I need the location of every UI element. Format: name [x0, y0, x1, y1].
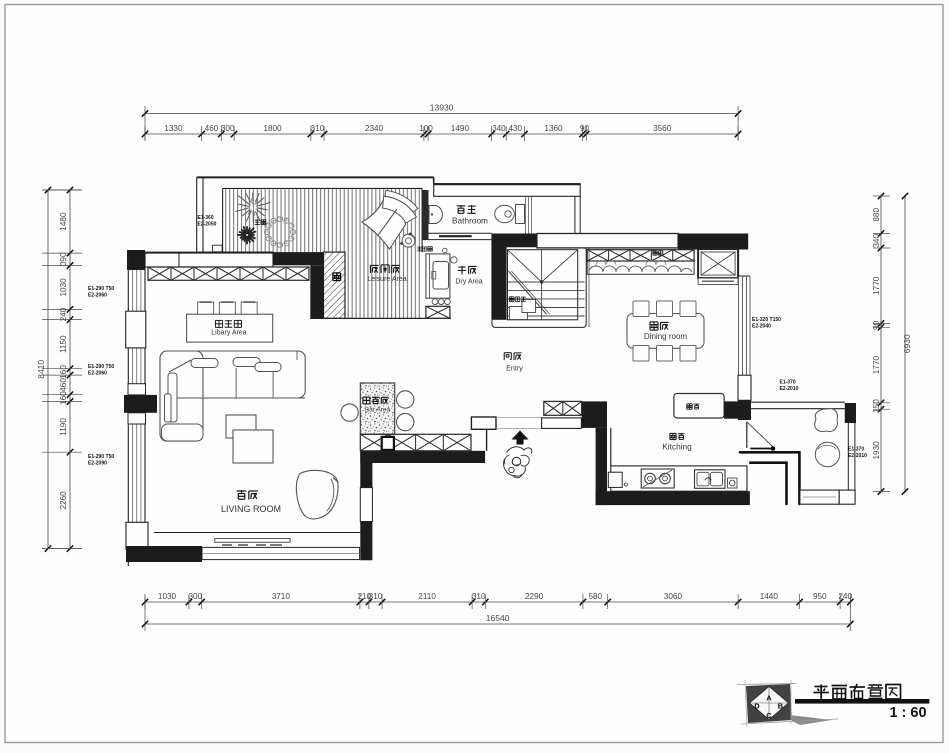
svg-text:LIVING ROOM: LIVING ROOM: [221, 504, 281, 514]
svg-text:Entry: Entry: [506, 364, 523, 373]
svg-text:E2-2040: E2-2040: [752, 324, 771, 330]
svg-text:1330: 1330: [164, 124, 183, 133]
svg-text:2340: 2340: [365, 124, 384, 133]
svg-text:3560: 3560: [653, 124, 672, 133]
svg-text:1770: 1770: [872, 356, 881, 375]
svg-text:340: 340: [492, 124, 506, 133]
svg-text:310: 310: [369, 592, 383, 601]
svg-text:E2-2060: E2-2060: [88, 371, 107, 377]
svg-text:Dining room: Dining room: [644, 332, 687, 341]
svg-text:880: 880: [872, 208, 881, 222]
svg-text:E1-370: E1-370: [780, 380, 796, 386]
svg-text:580: 580: [588, 592, 602, 601]
svg-text:1030: 1030: [59, 278, 68, 297]
svg-text:2290: 2290: [525, 592, 544, 601]
svg-text:E1-360: E1-360: [198, 215, 214, 221]
svg-text:13930: 13930: [430, 103, 454, 113]
svg-text:2110: 2110: [418, 592, 436, 601]
svg-text:460: 460: [59, 378, 68, 392]
svg-text:16540: 16540: [486, 613, 510, 623]
svg-text:300: 300: [188, 592, 202, 601]
svg-text:1930: 1930: [872, 441, 881, 460]
svg-text:3710: 3710: [272, 592, 291, 601]
svg-text:90: 90: [580, 124, 590, 133]
svg-text:240: 240: [59, 307, 68, 321]
svg-text:160: 160: [59, 365, 68, 379]
svg-text:E2-2010: E2-2010: [780, 386, 799, 392]
svg-text:1150: 1150: [59, 335, 68, 353]
svg-text:Dry Area: Dry Area: [455, 279, 482, 286]
svg-text:8410: 8410: [36, 360, 46, 379]
svg-text:E1-370: E1-370: [848, 447, 864, 453]
svg-text:300: 300: [221, 124, 235, 133]
svg-text:A: A: [766, 694, 772, 703]
svg-text:Leisure Area: Leisure Area: [367, 276, 406, 283]
svg-text:E1-290 T50: E1-290 T50: [88, 286, 114, 292]
svg-text:E1-320 T150: E1-320 T150: [752, 317, 781, 323]
svg-text:E1-290 T50: E1-290 T50: [88, 364, 114, 370]
svg-text:1 : 60: 1 : 60: [889, 705, 926, 721]
svg-text:310: 310: [472, 592, 486, 601]
svg-text:950: 950: [813, 592, 827, 601]
svg-text:D: D: [754, 702, 760, 711]
svg-text:E2-2090: E2-2090: [88, 461, 107, 467]
svg-text:E1-290 T50: E1-290 T50: [88, 454, 114, 460]
svg-text:090: 090: [59, 252, 68, 266]
svg-text:2260: 2260: [59, 491, 68, 510]
svg-text:6930: 6930: [902, 334, 912, 353]
svg-text:310: 310: [311, 124, 325, 133]
svg-text:1190: 1190: [59, 418, 68, 436]
svg-text:460: 460: [205, 124, 219, 133]
svg-text:1440: 1440: [760, 592, 779, 601]
svg-text:240: 240: [838, 592, 852, 601]
svg-text:1480: 1480: [59, 212, 68, 231]
svg-text:1030: 1030: [158, 592, 177, 601]
svg-text:150: 150: [872, 399, 881, 413]
svg-text:90: 90: [872, 320, 881, 330]
svg-text:C: C: [766, 711, 772, 720]
svg-text:3060: 3060: [664, 592, 683, 601]
svg-text:Bathroom: Bathroom: [452, 216, 488, 226]
svg-text:1490: 1490: [451, 124, 470, 133]
svg-text:Kitching: Kitching: [662, 442, 692, 452]
svg-text:340: 340: [872, 234, 881, 248]
svg-text:1770: 1770: [872, 276, 881, 295]
svg-text:B: B: [778, 702, 784, 711]
svg-text:Libary Area: Libary Area: [211, 330, 247, 337]
svg-text:1800: 1800: [263, 124, 282, 133]
svg-text:E2-2010: E2-2010: [848, 453, 867, 459]
svg-text:E2-2050: E2-2050: [198, 222, 217, 228]
svg-text:160: 160: [59, 391, 68, 405]
svg-text:E2-2060: E2-2060: [88, 293, 107, 299]
svg-text:100: 100: [419, 124, 433, 133]
svg-text:430: 430: [508, 124, 522, 133]
svg-text:1360: 1360: [544, 124, 563, 133]
svg-text:Bar Area: Bar Area: [365, 407, 391, 414]
